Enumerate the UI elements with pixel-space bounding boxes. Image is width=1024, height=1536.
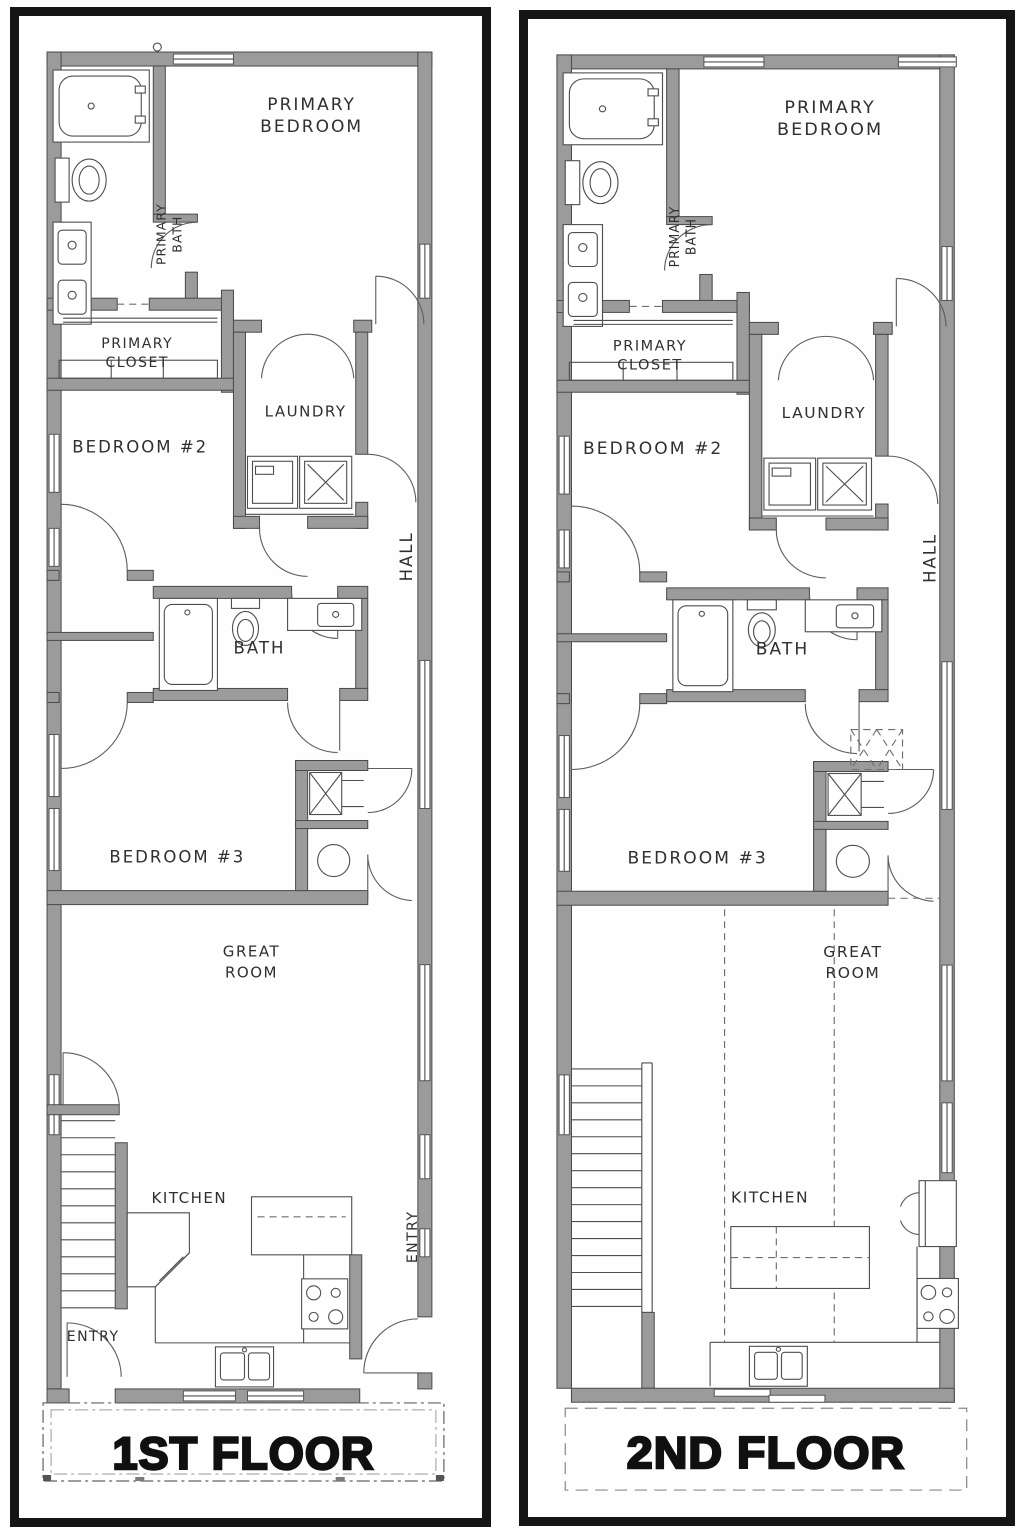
room-label-primary-bedroom-2: BEDROOM [260,117,363,137]
room-label-primary-closet-2: CLOSET [617,358,683,374]
stairs [61,1121,127,1309]
room-label-entry-front: ENTRY [67,1329,120,1345]
svg-text:BATH: BATH [169,216,184,253]
kitchen-peninsula [252,1197,352,1255]
room-label-great-room: GREAT [223,943,280,961]
room-label-primary-closet-2: CLOSET [106,355,169,371]
stair-closet-door [63,1053,119,1105]
floor-plan-panel-2nd: PRIMARY BEDROOM PRIMARY BATH PRIMARY CLO… [519,10,1015,1526]
room-label-laundry: LAUNDRY [782,404,867,422]
kitchen-sink [215,1347,273,1387]
room-label-bath: BATH [234,638,286,657]
svg-text:BATH: BATH [683,218,698,255]
corner-pantry [127,1213,189,1287]
room-label-kitchen: KITCHEN [731,1189,809,1207]
stair-closet-wall [47,1105,119,1115]
kitchen-island [731,1227,870,1289]
room-label-hall: HALL [919,533,939,583]
room-label-bedroom3: BEDROOM #3 [628,848,768,868]
svg-text:ENTRY: ENTRY [405,1210,421,1263]
room-label-primary-bath: PRIMARY BATH [667,206,699,268]
floor-plan-sheet: PRIMARY BEDROOM PRIMARY BATH PRIMARY CLO… [0,0,1024,1536]
stair-wall-lower [642,1312,654,1388]
room-label-entry-side: ENTRY [405,1210,421,1263]
bottom-wall [571,1388,954,1402]
floor-plan-2nd: PRIMARY BEDROOM PRIMARY BATH PRIMARY CLO… [528,19,1006,1517]
window-right-lower [942,1103,952,1173]
room-label-great-room-2: ROOM [825,964,880,982]
stove [302,1279,348,1329]
room-label-hall: HALL [397,531,416,581]
stairs [571,1063,652,1313]
room-label-kitchen: KITCHEN [152,1189,228,1207]
bottom-wall [47,1389,360,1403]
svg-text:PRIMARY: PRIMARY [153,203,168,265]
svg-text:HALL: HALL [397,531,416,581]
right-wall-stub [418,1373,432,1389]
floor-plan-1st: PRIMARY BEDROOM PRIMARY BATH PRIMARY CLO… [19,16,482,1518]
room-label-primary-bath: PRIMARY BATH [153,203,184,265]
room-label-primary-bedroom: PRIMARY [267,95,356,115]
refrigerator [900,1181,956,1247]
floor2-title: 2ND FLOOR [627,1428,905,1478]
svg-text:HALL: HALL [919,533,939,583]
hose-bib-icon [153,43,161,51]
floor-plan-panel-1st: PRIMARY BEDROOM PRIMARY BATH PRIMARY CLO… [10,7,491,1527]
room-label-primary-bedroom: PRIMARY [784,98,875,118]
kitchen-sink [749,1346,807,1386]
room-label-bath: BATH [756,639,810,659]
floor1-title: 1ST FLOOR [112,1428,374,1479]
room-label-bedroom2: BEDROOM #2 [583,438,723,458]
room-label-primary-closet: PRIMARY [613,339,687,355]
room-label-bedroom3: BEDROOM #3 [109,848,245,867]
room-label-great-room-2: ROOM [225,964,278,982]
room-label-primary-bedroom-2: BEDROOM [777,120,883,140]
room-label-primary-closet: PRIMARY [101,336,173,352]
window-top [173,54,233,64]
room-label-laundry: LAUNDRY [265,402,347,420]
stove [917,1278,958,1328]
entry-wall [350,1255,362,1359]
svg-text:PRIMARY: PRIMARY [667,206,682,268]
side-entry-door [364,1319,418,1373]
room-label-bedroom2: BEDROOM #2 [72,437,208,456]
room-label-great-room: GREAT [823,943,882,961]
